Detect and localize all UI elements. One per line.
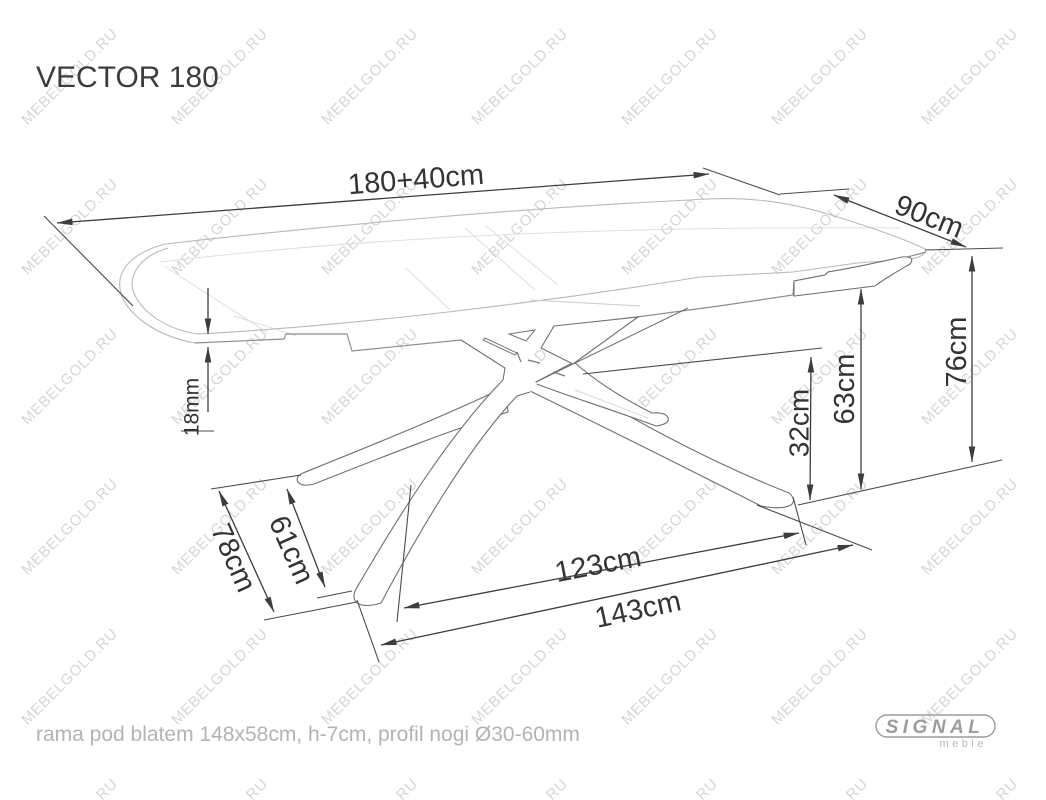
svg-text:meble: meble xyxy=(940,738,987,750)
svg-text:rama pod blatem 148x58cm, h-7c: rama pod blatem 148x58cm, h-7cm, profil … xyxy=(36,723,580,746)
svg-text:32cm: 32cm xyxy=(784,389,815,457)
svg-text:63cm: 63cm xyxy=(829,354,861,425)
svg-text:SIGNAL: SIGNAL xyxy=(886,717,985,738)
svg-text:18mm: 18mm xyxy=(181,378,204,436)
svg-text:76cm: 76cm xyxy=(941,317,973,388)
svg-text:VECTOR 180: VECTOR 180 xyxy=(36,61,219,94)
